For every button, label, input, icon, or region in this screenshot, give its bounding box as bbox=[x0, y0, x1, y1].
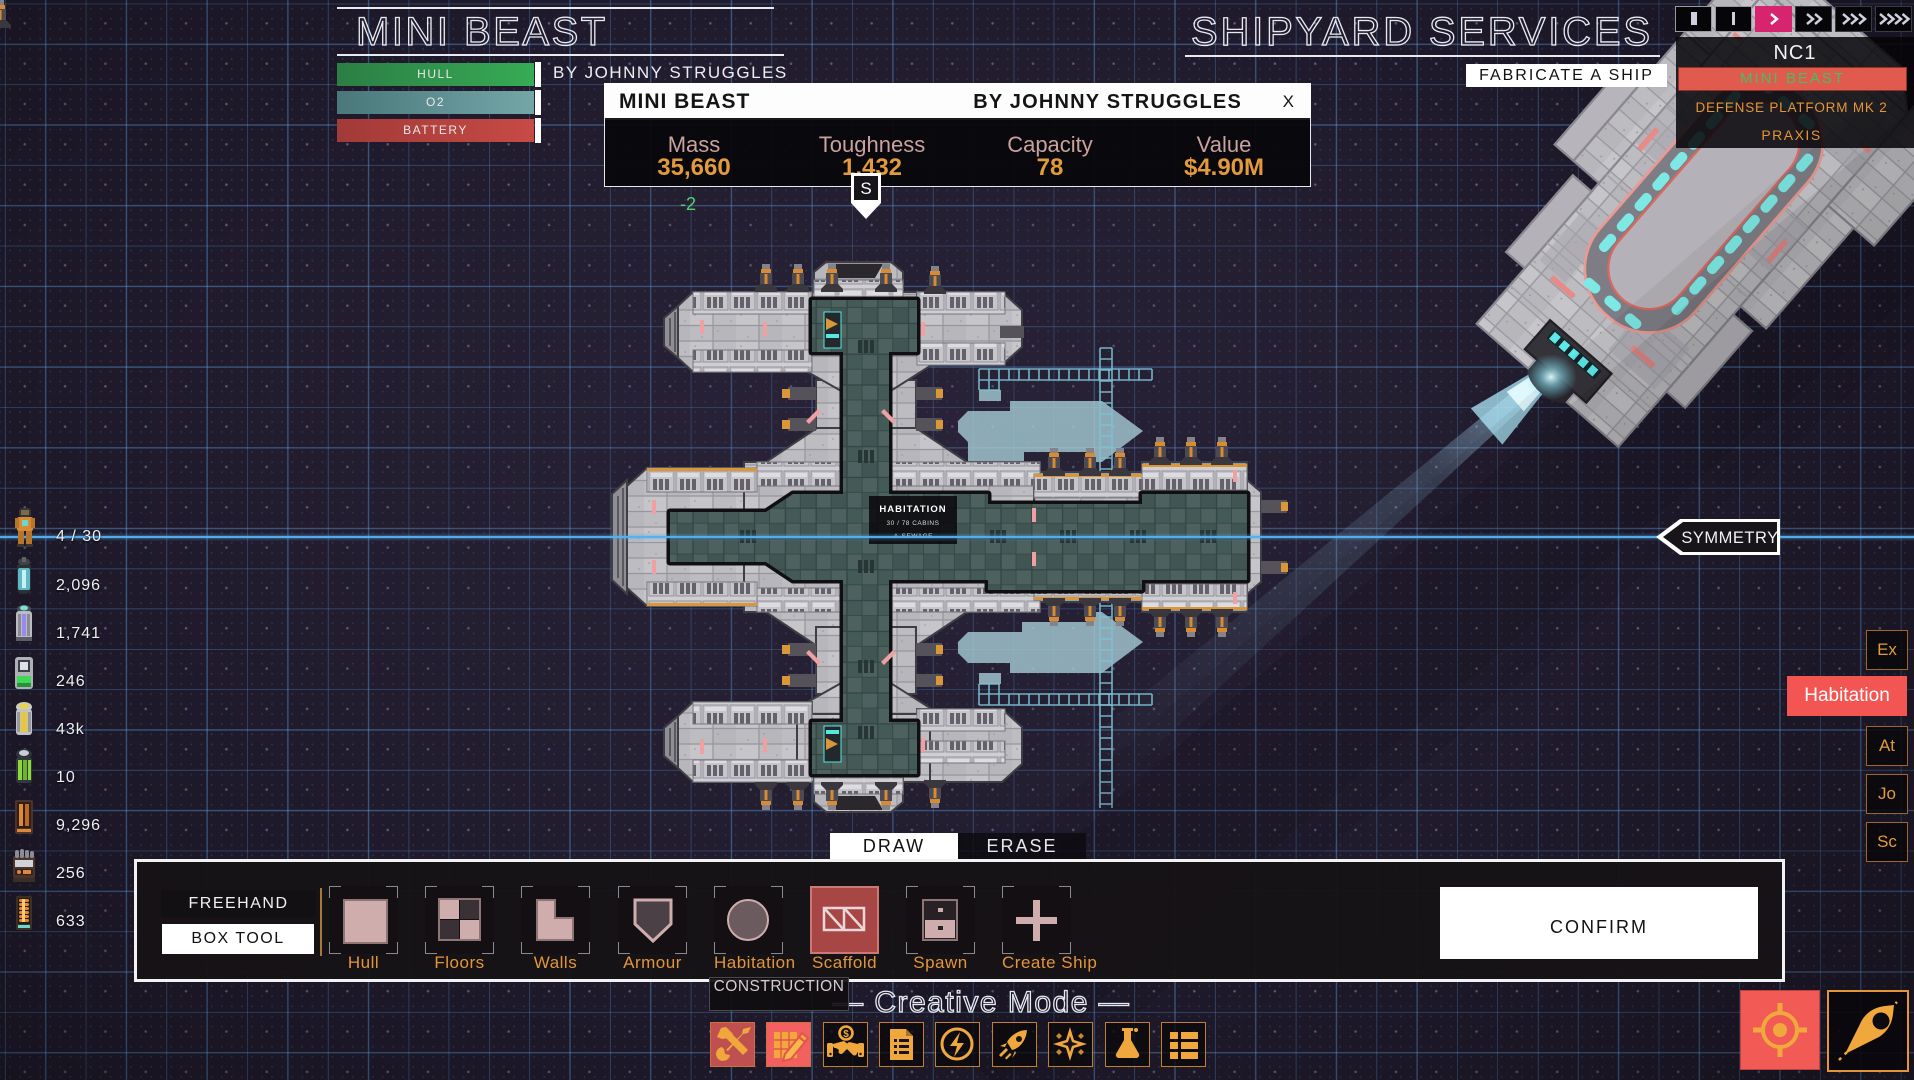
svg-text:$: $ bbox=[843, 1029, 849, 1040]
svg-text:30 / 78 CABINS: 30 / 78 CABINS bbox=[887, 520, 940, 527]
svg-text:HABITATION: HABITATION bbox=[879, 504, 946, 515]
svg-text:SYMMETRY: SYMMETRY bbox=[1681, 529, 1778, 547]
svg-text:S: S bbox=[860, 179, 871, 198]
